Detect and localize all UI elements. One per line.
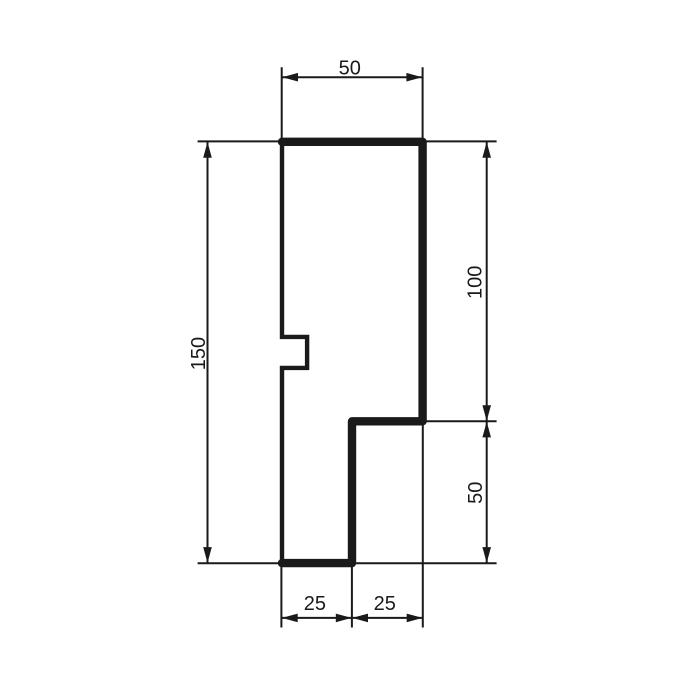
- svg-text:50: 50: [339, 58, 361, 80]
- svg-text:50: 50: [465, 482, 487, 504]
- svg-text:150: 150: [188, 337, 210, 370]
- svg-text:100: 100: [465, 266, 487, 299]
- svg-text:25: 25: [374, 593, 396, 615]
- svg-text:25: 25: [304, 593, 326, 615]
